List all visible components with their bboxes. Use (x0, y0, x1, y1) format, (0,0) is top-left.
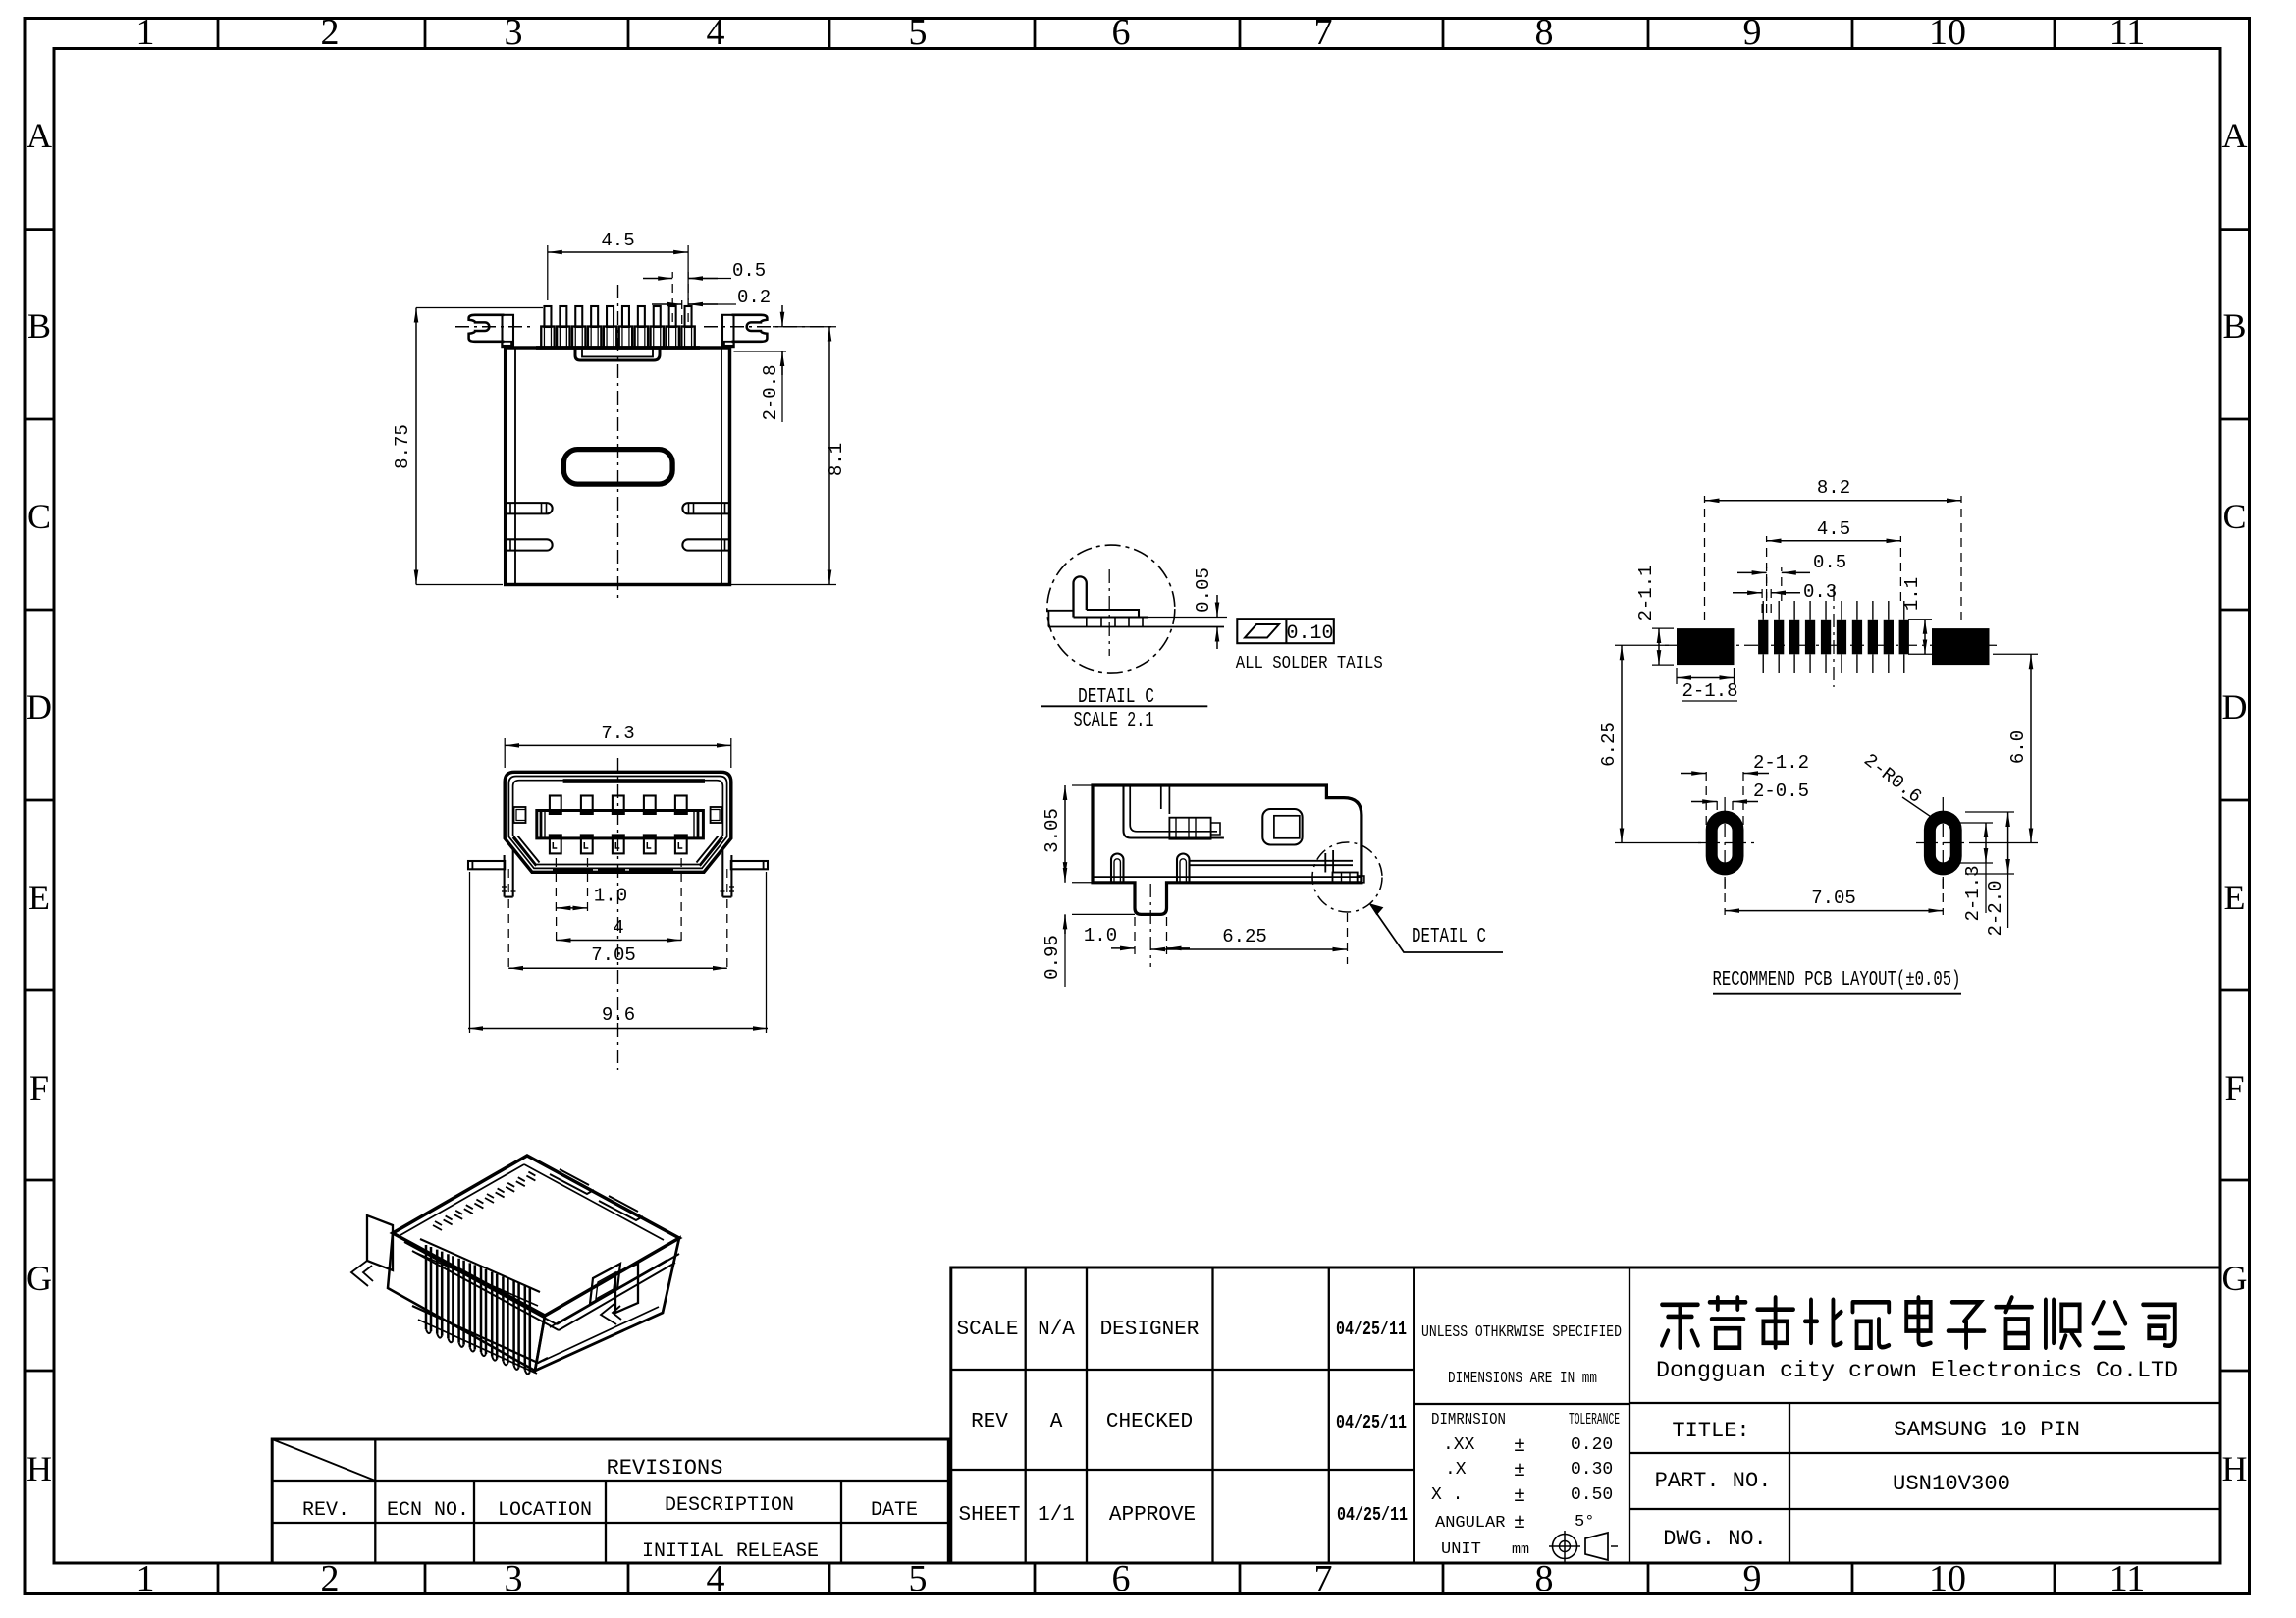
svg-text:0.50: 0.50 (1571, 1485, 1613, 1505)
svg-text:2-2.0: 2-2.0 (1985, 880, 2006, 936)
svg-text:CHECKED: CHECKED (1106, 1411, 1193, 1433)
svg-text:5: 5 (909, 12, 928, 53)
svg-text:0.20: 0.20 (1571, 1435, 1613, 1455)
svg-text:ALL SOLDER TAILS: ALL SOLDER TAILS (1236, 654, 1383, 674)
svg-text:F: F (2224, 1068, 2244, 1107)
svg-text:8.2: 8.2 (1817, 477, 1850, 499)
svg-text:1: 1 (136, 12, 155, 53)
svg-text:4: 4 (613, 917, 623, 939)
svg-text:4: 4 (707, 12, 725, 53)
svg-text:8: 8 (1535, 12, 1554, 53)
svg-text:0.30: 0.30 (1571, 1460, 1613, 1480)
svg-text:2-1.1: 2-1.1 (1635, 565, 1657, 620)
svg-text:7.3: 7.3 (601, 723, 634, 744)
svg-text:DESIGNER: DESIGNER (1100, 1319, 1200, 1341)
svg-text:DWG. NO.: DWG. NO. (1663, 1527, 1767, 1551)
svg-text:.XX: .XX (1443, 1435, 1475, 1455)
svg-text:DIMRNSION: DIMRNSION (1431, 1411, 1506, 1429)
svg-text:USN10V300: USN10V300 (1893, 1472, 2010, 1496)
svg-text:7: 7 (1314, 12, 1333, 53)
svg-text:SCALE: SCALE (956, 1319, 1018, 1341)
svg-text:PART. NO.: PART. NO. (1655, 1469, 1772, 1493)
svg-text:SCALE 2.1: SCALE 2.1 (1074, 710, 1154, 732)
svg-text:1.0: 1.0 (1084, 925, 1117, 946)
svg-text:3: 3 (505, 12, 523, 53)
svg-text:DATE: DATE (871, 1499, 918, 1522)
svg-text:1.0: 1.0 (594, 886, 627, 907)
svg-text:INITIAL RELEASE: INITIAL RELEASE (642, 1540, 819, 1563)
svg-text:1.1: 1.1 (1901, 577, 1923, 611)
svg-text:F: F (29, 1068, 49, 1107)
svg-text:H: H (27, 1449, 52, 1488)
svg-text:7.05: 7.05 (1811, 888, 1856, 909)
svg-text:10: 10 (1929, 12, 1966, 53)
svg-text:±: ± (1514, 1460, 1525, 1483)
svg-text:5°: 5° (1575, 1513, 1594, 1532)
svg-text:4.5: 4.5 (601, 230, 634, 251)
svg-text:DETAIL C: DETAIL C (1412, 926, 1486, 948)
svg-text:Dongguan city crown Electronic: Dongguan city crown Electronics Co.LTD (1656, 1358, 2178, 1383)
svg-text:SAMSUNG 10 PIN: SAMSUNG 10 PIN (1894, 1418, 2080, 1442)
svg-text:D: D (2222, 687, 2248, 727)
svg-text:9: 9 (1743, 12, 1762, 53)
svg-text:A: A (27, 116, 52, 155)
svg-text:REV: REV (971, 1411, 1008, 1433)
svg-text:0.05: 0.05 (1193, 567, 1214, 613)
svg-text:2: 2 (321, 12, 340, 53)
svg-text:1: 1 (136, 1558, 155, 1599)
svg-text:0.2: 0.2 (737, 287, 771, 308)
svg-text:DIMENSIONS ARE IN mm: DIMENSIONS ARE IN mm (1448, 1370, 1597, 1388)
svg-text:UNIT: UNIT (1441, 1540, 1481, 1559)
svg-text:6.0: 6.0 (2007, 730, 2029, 764)
svg-text:2-0.8: 2-0.8 (760, 364, 781, 420)
svg-text:C: C (2222, 497, 2246, 536)
svg-text:DESCRIPTION: DESCRIPTION (665, 1494, 794, 1517)
svg-text:A: A (2222, 116, 2248, 155)
svg-text:ANGULAR: ANGULAR (1435, 1514, 1505, 1533)
svg-text:8.75: 8.75 (392, 424, 413, 469)
svg-text:04/25/11: 04/25/11 (1337, 1504, 1408, 1526)
svg-text:04/25/11: 04/25/11 (1336, 1412, 1407, 1433)
svg-text:2-1.8: 2-1.8 (1682, 680, 1737, 702)
svg-text:1/1: 1/1 (1038, 1504, 1075, 1527)
svg-text:REVISIONS: REVISIONS (607, 1456, 723, 1481)
svg-text:0.10: 0.10 (1286, 622, 1333, 645)
svg-text:±: ± (1514, 1512, 1525, 1535)
svg-text:E: E (2224, 878, 2246, 917)
svg-text:B: B (27, 306, 51, 346)
svg-text:6.25: 6.25 (1598, 722, 1620, 767)
svg-text:N/A: N/A (1038, 1319, 1075, 1341)
svg-text:8.1: 8.1 (826, 443, 847, 476)
svg-text:ECN NO.: ECN NO. (387, 1499, 469, 1522)
svg-text:7.05: 7.05 (591, 944, 636, 966)
svg-text:APPROVE: APPROVE (1109, 1504, 1196, 1527)
svg-text:.X: .X (1445, 1460, 1467, 1480)
svg-text:LOCATION: LOCATION (498, 1499, 592, 1522)
svg-text:0.5: 0.5 (1813, 552, 1846, 573)
svg-text:11: 11 (2109, 12, 2146, 53)
svg-text:±: ± (1514, 1485, 1525, 1508)
svg-text:mm: mm (1512, 1541, 1529, 1558)
svg-text:±: ± (1514, 1435, 1525, 1458)
svg-text:B: B (2222, 306, 2246, 346)
svg-text:TITLE:: TITLE: (1672, 1419, 1749, 1443)
svg-text:2-1.2: 2-1.2 (1753, 752, 1809, 774)
svg-text:SHEET: SHEET (958, 1504, 1020, 1527)
svg-text:4.5: 4.5 (1817, 518, 1850, 540)
svg-text:2-0.5: 2-0.5 (1753, 781, 1809, 802)
svg-text:6.25: 6.25 (1222, 926, 1267, 947)
svg-text:REV.: REV. (302, 1499, 349, 1522)
svg-text:04/25/11: 04/25/11 (1336, 1319, 1407, 1340)
svg-text:0.95: 0.95 (1041, 935, 1063, 980)
svg-text:RECOMMEND PCB LAYOUT(±0.05): RECOMMEND PCB LAYOUT(±0.05) (1713, 969, 1961, 992)
svg-text:G: G (2222, 1259, 2248, 1298)
svg-text:6: 6 (1112, 12, 1131, 53)
svg-text:A: A (1050, 1411, 1063, 1433)
svg-text:D: D (27, 687, 52, 727)
svg-text:H: H (2222, 1449, 2248, 1488)
svg-text:E: E (28, 878, 50, 917)
svg-text:3.05: 3.05 (1041, 808, 1063, 853)
svg-text:X .: X . (1431, 1485, 1463, 1505)
svg-text:9.6: 9.6 (602, 1004, 635, 1026)
svg-text:G: G (27, 1259, 52, 1298)
svg-text:UNLESS OTHKRWISE SPECIFIED: UNLESS OTHKRWISE SPECIFIED (1421, 1323, 1622, 1342)
svg-text:0.5: 0.5 (732, 260, 766, 282)
svg-text:0.3: 0.3 (1803, 581, 1837, 603)
svg-text:TOLERANCE: TOLERANCE (1569, 1411, 1620, 1429)
svg-text:C: C (27, 497, 51, 536)
